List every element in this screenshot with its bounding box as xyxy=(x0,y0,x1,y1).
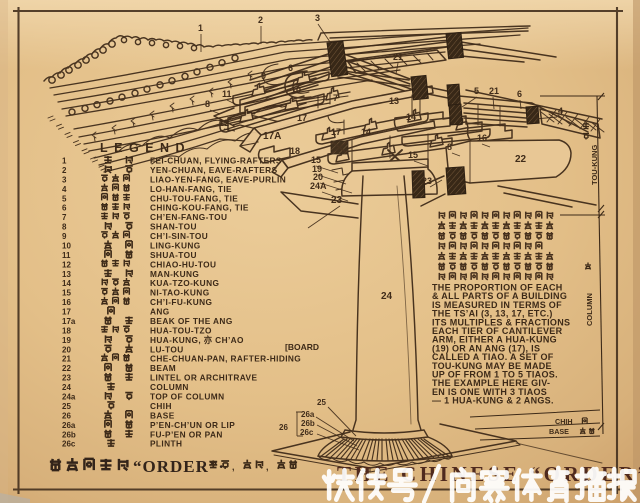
svg-text:24: 24 xyxy=(381,291,393,302)
svg-text:COLUMN: COLUMN xyxy=(585,293,594,326)
svg-text:26a: 26a xyxy=(62,421,76,430)
svg-text:26b: 26b xyxy=(62,430,76,439)
svg-text:6: 6 xyxy=(288,63,293,73)
svg-text:19: 19 xyxy=(62,336,71,345)
svg-text:YEN-CHUAN, EAVE-RAFTERS: YEN-CHUAN, EAVE-RAFTERS xyxy=(150,165,278,175)
svg-text:,: , xyxy=(232,462,235,472)
svg-text:13: 13 xyxy=(62,270,71,279)
svg-text:7: 7 xyxy=(62,213,67,222)
svg-text:12: 12 xyxy=(219,118,229,128)
svg-text:17: 17 xyxy=(297,113,307,123)
svg-text:1: 1 xyxy=(198,23,203,33)
svg-text:8: 8 xyxy=(447,142,452,152)
svg-text:3: 3 xyxy=(315,13,320,23)
svg-text:12: 12 xyxy=(62,260,71,269)
svg-text:11: 11 xyxy=(62,251,71,260)
svg-text:22: 22 xyxy=(515,154,527,165)
svg-text:[BOARD: [BOARD xyxy=(285,342,319,352)
svg-text:CHIH: CHIH xyxy=(555,417,573,426)
svg-text:1: 1 xyxy=(62,157,67,166)
svg-text:21: 21 xyxy=(62,355,71,364)
svg-text:24: 24 xyxy=(62,383,71,392)
svg-text:,: , xyxy=(266,462,269,472)
svg-text:14: 14 xyxy=(62,279,71,288)
svg-text:15: 15 xyxy=(408,150,418,160)
svg-text:24a: 24a xyxy=(62,393,76,402)
svg-text:21: 21 xyxy=(489,86,499,96)
svg-text:TOU-KUNG: TOU-KUNG xyxy=(590,145,599,185)
svg-text:18: 18 xyxy=(62,326,71,335)
svg-text:4: 4 xyxy=(62,185,67,194)
svg-text:25: 25 xyxy=(317,398,326,407)
svg-text:26: 26 xyxy=(279,423,288,432)
svg-text:CH’EN-FANG-TOU: CH’EN-FANG-TOU xyxy=(150,212,227,222)
svg-text:14: 14 xyxy=(406,112,416,122)
svg-text:15: 15 xyxy=(62,289,71,298)
svg-text:5: 5 xyxy=(474,86,479,96)
svg-text:5: 5 xyxy=(62,194,67,203)
svg-text:10: 10 xyxy=(62,242,71,251)
svg-text:6: 6 xyxy=(62,204,67,213)
svg-text:13: 13 xyxy=(389,96,399,106)
svg-text:26a: 26a xyxy=(301,410,315,419)
svg-text:16: 16 xyxy=(62,298,71,307)
svg-text:LO-HAN-FANG, TIE: LO-HAN-FANG, TIE xyxy=(150,184,232,194)
svg-text:— 1 HUA-KUNG & 2 ANGS.: — 1 HUA-KUNG & 2 ANGS. xyxy=(432,396,554,406)
svg-text:LINTEL OR ARCHITRAVE: LINTEL OR ARCHITRAVE xyxy=(150,373,257,383)
svg-text:24A: 24A xyxy=(310,181,327,191)
svg-text:16: 16 xyxy=(477,133,487,143)
svg-text:25: 25 xyxy=(62,402,71,411)
svg-text:23: 23 xyxy=(62,374,71,383)
svg-text:20: 20 xyxy=(62,345,71,354)
svg-text:CHE-CHUAN-PAN, RAFTER-HIDING: CHE-CHUAN-PAN, RAFTER-HIDING xyxy=(150,354,301,364)
svg-text:HUA-TOU-TZO: HUA-TOU-TZO xyxy=(150,325,212,335)
svg-text:8: 8 xyxy=(62,223,67,232)
svg-text:CHIAO-HU-TOU: CHIAO-HU-TOU xyxy=(150,259,216,269)
svg-text:26b: 26b xyxy=(301,419,315,428)
svg-text:2: 2 xyxy=(258,15,263,25)
svg-text:17: 17 xyxy=(62,308,71,317)
svg-text:2: 2 xyxy=(62,166,67,175)
svg-text:P’EN-CH’UN OR LIP: P’EN-CH’UN OR LIP xyxy=(150,420,235,430)
svg-text:7: 7 xyxy=(333,93,338,103)
svg-text:8: 8 xyxy=(205,99,210,109)
svg-text:LEGEND: LEGEND xyxy=(100,141,191,155)
svg-text:17a: 17a xyxy=(62,317,76,326)
svg-text:10: 10 xyxy=(291,85,301,95)
svg-text:9: 9 xyxy=(62,232,67,241)
svg-text:4: 4 xyxy=(558,106,563,116)
svg-text:PLINTH: PLINTH xyxy=(150,439,182,449)
svg-text:21: 21 xyxy=(393,52,403,62)
svg-text:BASE: BASE xyxy=(549,427,569,436)
svg-text:ANG: ANG xyxy=(150,307,170,317)
svg-text:14: 14 xyxy=(361,127,371,137)
svg-text:17A: 17A xyxy=(263,131,281,142)
svg-text:3: 3 xyxy=(62,175,67,184)
svg-text:KUA-TZO-KUNG: KUA-TZO-KUNG xyxy=(150,278,219,288)
svg-text:23: 23 xyxy=(422,176,432,186)
svg-text:11: 11 xyxy=(222,89,232,99)
svg-text:22: 22 xyxy=(62,364,71,373)
svg-text:17: 17 xyxy=(331,127,341,137)
svg-text:18: 18 xyxy=(290,146,300,156)
svg-text:6: 6 xyxy=(517,89,522,99)
svg-text:9: 9 xyxy=(261,71,266,81)
svg-text:CH’I-SIN-TOU: CH’I-SIN-TOU xyxy=(150,231,208,241)
svg-text:26c: 26c xyxy=(62,440,76,449)
svg-text:“ORDER”·: “ORDER”· xyxy=(133,457,225,476)
svg-text:CHIH: CHIH xyxy=(150,401,172,411)
svg-text:26: 26 xyxy=(62,411,71,420)
